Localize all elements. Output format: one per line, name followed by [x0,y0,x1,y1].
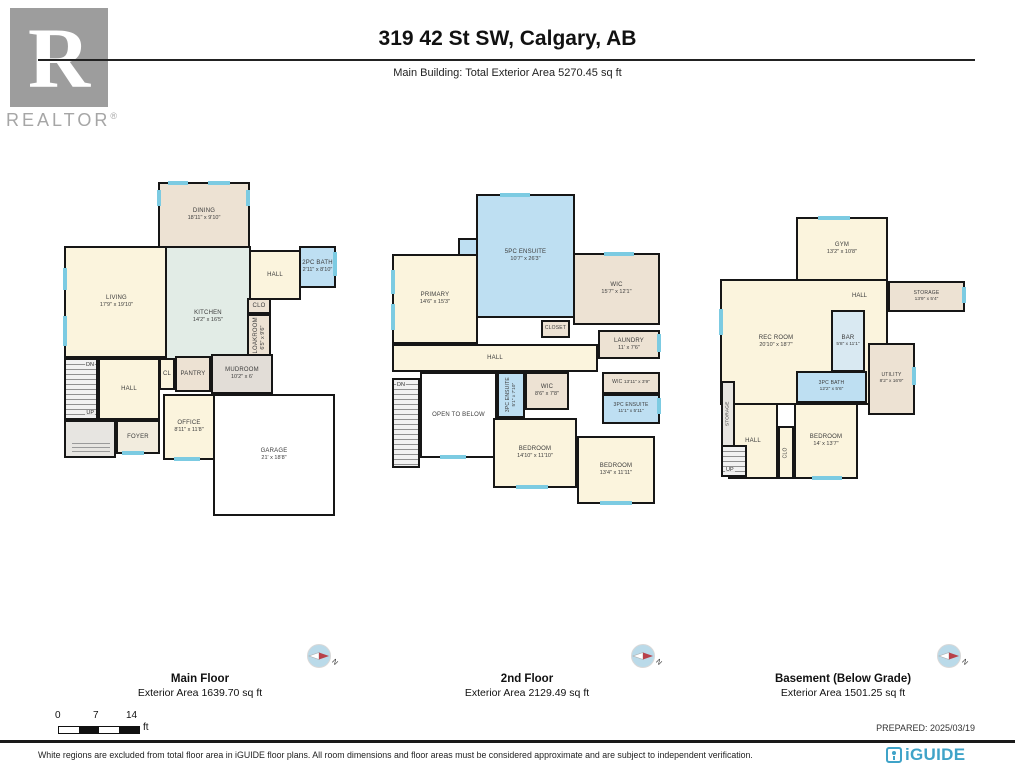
window-marker [600,501,632,505]
room-2pc-bath: 2PC BATH2'11" x 8'10" [299,246,336,288]
room-hall-upper: HALL [249,250,301,300]
window-marker [174,457,200,461]
room-hall-upper-label: HALL [852,293,867,299]
stairs-up-label: UP [85,410,95,416]
compass-icon: N [306,643,346,675]
caption-title: 2nd Floor [407,673,647,685]
stairs-dn-label: DN [85,362,95,368]
room-storage-vertical: STORAGE [721,381,735,447]
room-garage: GARAGE21' x 18'8" [213,394,335,516]
room-clo: CLO [247,298,271,314]
room-laundry: LAUNDRY11' x 7'6" [598,330,660,359]
scale-segment [59,727,79,733]
scale-tick-14: 14 [126,710,137,721]
footer-divider [0,740,1015,743]
iguide-icon-stem [893,756,896,760]
realtor-logo: R [10,8,108,107]
room-storage: STORAGE13'9" x 5'4" [888,281,965,312]
entry-porch [64,420,116,458]
caption-title: Main Floor [80,673,320,685]
window-marker [391,270,395,294]
room-dining: DINING18'11" x 9'10" [158,182,250,248]
prepared-date: PREPARED: 2025/03/19 [876,723,975,733]
header-divider [38,59,975,61]
open-to-below: OPEN TO BELOW [420,372,497,458]
compass-icon: N [630,643,670,675]
room-primary: PRIMARY14'6" x 15'3" [392,254,478,344]
scale-segment [79,727,99,733]
window-marker [208,181,230,185]
room-clo-basement: CLO [778,426,794,479]
room-bedroom-center: BEDROOM14'10" x 11'10" [493,418,577,488]
caption-second-floor: 2nd Floor Exterior Area 2129.49 sq ft [407,673,647,699]
room-foyer: FOYER [116,420,160,454]
caption-main-floor: Main Floor Exterior Area 1639.70 sq ft [80,673,320,699]
room-wic-center: WIC8'6" x 7'8" [525,372,569,410]
realtor-wordmark: REALTOR® [6,110,120,131]
window-marker [63,316,67,346]
window-marker [818,216,850,220]
scale-tick-7: 7 [93,710,99,721]
window-marker [246,190,250,206]
caption-area: Exterior Area 1501.25 sq ft [723,687,963,699]
scale-bar [58,726,140,734]
window-marker [157,190,161,206]
window-marker [333,252,337,276]
room-pantry: PANTRY [175,356,211,392]
room-3pc-ensuite-center: 3PC ENSUITE5'1" x 7'10" [497,372,525,418]
room-bar: BAR5'8" x 11'1" [831,310,865,372]
room-bedroom-right: BEDROOM13'4" x 11'11" [577,436,655,504]
window-marker [500,193,530,197]
scale-segment [99,727,119,733]
window-marker [63,268,67,290]
page-title: 319 42 St SW, Calgary, AB [0,27,1015,51]
window-marker [516,485,548,489]
iguide-icon-dot [892,751,896,755]
porch-steps [72,440,110,454]
room-wic-primary: WIC15'7" x 12'1" [573,253,660,325]
window-marker [122,451,144,455]
stairs-up-label: UP [725,467,735,473]
window-marker [812,476,842,480]
window-marker [391,304,395,330]
window-marker [440,455,466,459]
caption-basement: Basement (Below Grade) Exterior Area 150… [723,673,963,699]
basement-floor-plan: GYM13'2" x 10'8" REC ROOM20'10" x 18'7" … [718,217,975,480]
disclaimer-text: White regions are excluded from total fl… [38,750,878,760]
caption-area: Exterior Area 2129.49 sq ft [407,687,647,699]
room-wic-right: WIC 13'11" x 3'9" [602,372,660,394]
caption-title: Basement (Below Grade) [723,673,963,685]
room-mudroom: MUDROOM10'2" x 6' [211,354,273,394]
stairs-main: DN UP [64,358,98,420]
scale-unit: ft [143,722,149,733]
room-5pc-ensuite: 5PC ENSUITE10'7" x 26'3" [476,194,575,318]
room-utility: UTILITY8'2" x 16'9" [868,343,915,415]
stairs-dn-label: DN [396,382,406,388]
room-hall-center: HALL [98,358,160,420]
scale-segment [119,727,139,733]
room-office: OFFICE8'11" x 11'8" [163,394,215,460]
room-gym: GYM13'2" x 10'8" [796,217,888,281]
room-3pc-ensuite-right: 3PC ENSUITE11'1" x 5'11" [602,394,660,424]
room-3pc-bath: 3PC BATH12'2" x 5'6" [796,371,867,403]
iguide-icon [886,747,902,763]
page-subtitle: Main Building: Total Exterior Area 5270.… [0,67,1015,79]
compass-icon: N [936,643,976,675]
window-marker [657,398,661,414]
stairs-second: DN [392,378,420,468]
window-marker [168,181,188,185]
window-marker [604,252,634,256]
window-marker [962,287,966,303]
second-floor-plan: 5PC ENSUITE10'7" x 26'3" PRIMARY14'6" x … [388,192,672,514]
room-closet: CLOSET [541,320,570,338]
scale-tick-0: 0 [55,710,61,721]
room-bedroom-basement: BEDROOM14' x 13'7" [794,403,858,479]
iguide-wordmark: iGUIDE [905,745,965,765]
caption-area: Exterior Area 1639.70 sq ft [80,687,320,699]
main-floor-plan: DINING18'11" x 9'10" LIVING17'9" x 19'10… [62,182,336,530]
stairs-basement: UP [721,445,747,477]
iguide-logo: iGUIDE [886,745,965,765]
window-marker [912,367,916,385]
room-living: LIVING17'9" x 19'10" [64,246,169,358]
room-hall: HALL [392,344,598,372]
window-marker [657,334,661,352]
room-cl: CL [159,358,175,390]
window-marker [719,309,723,335]
